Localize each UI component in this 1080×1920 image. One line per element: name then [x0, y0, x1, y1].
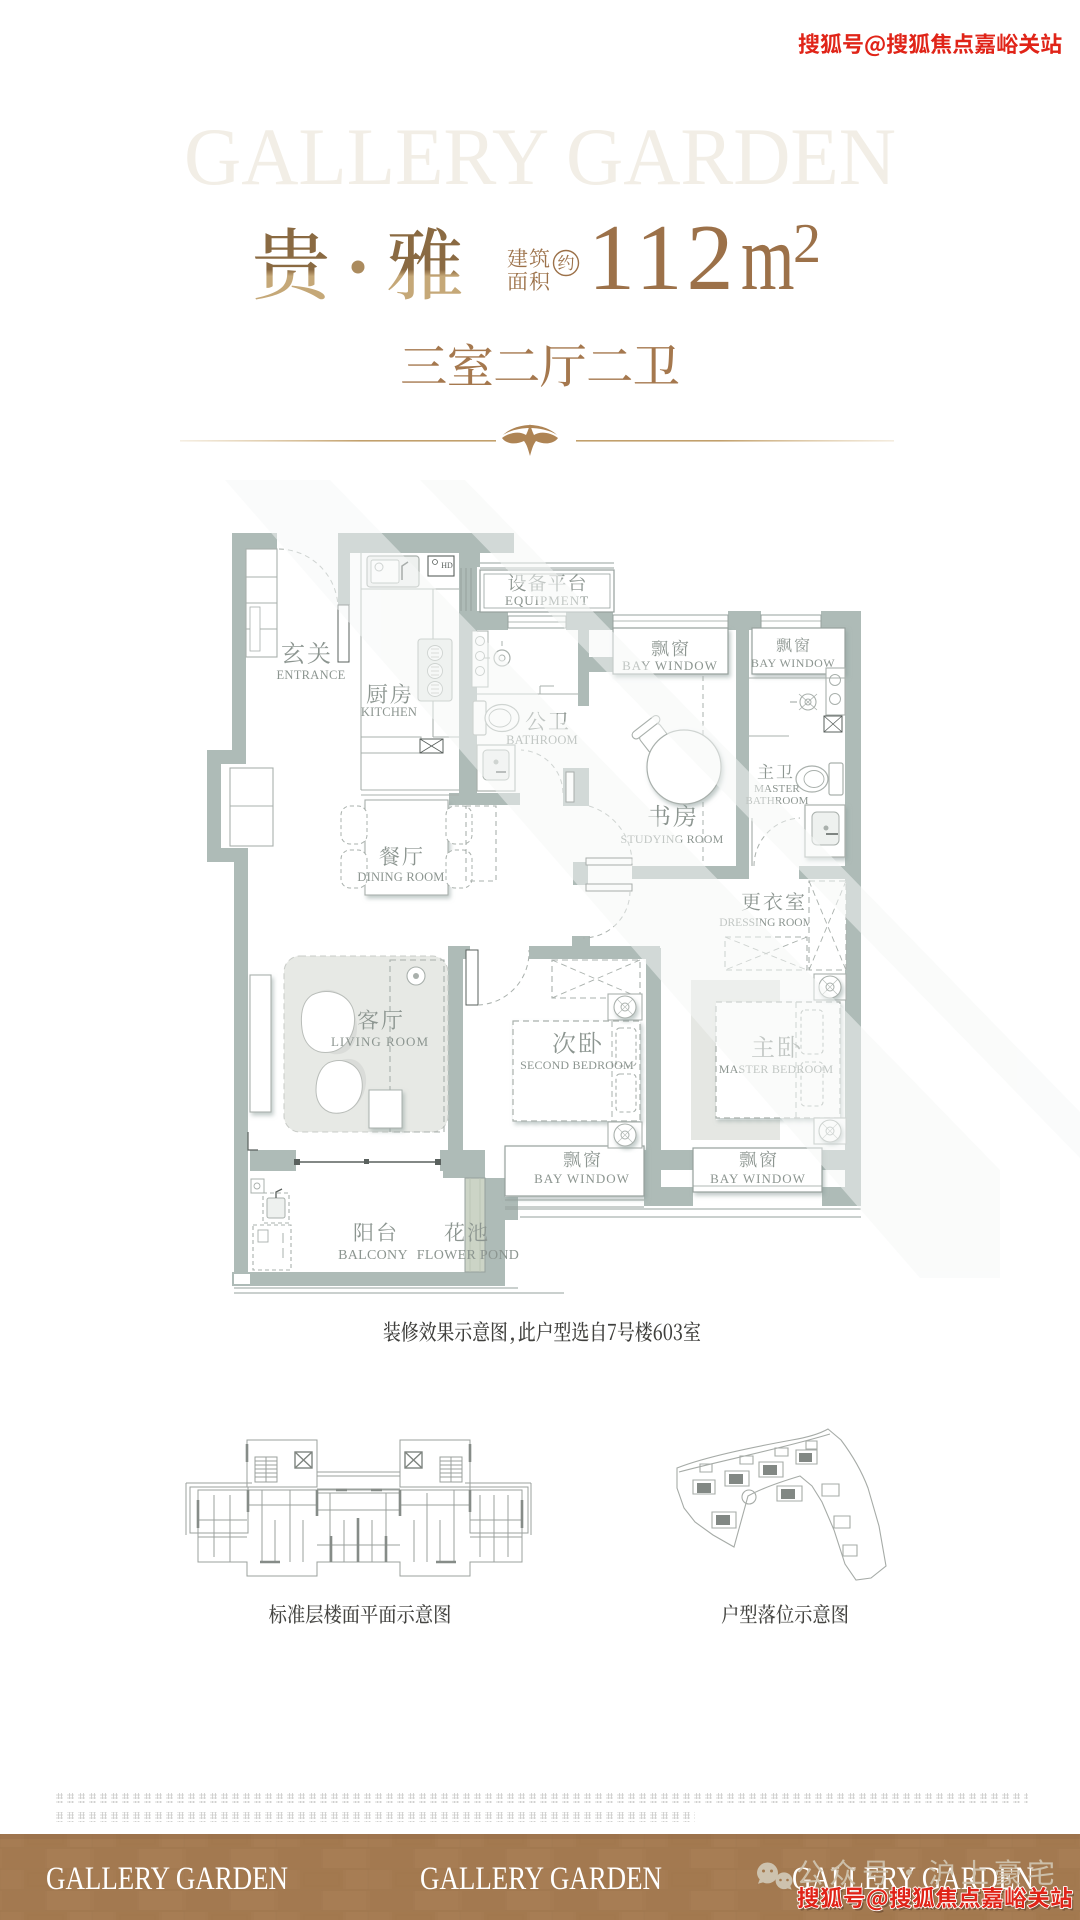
svg-text:FLOWER POND: FLOWER POND: [417, 1248, 519, 1263]
svg-text:GALLERY GARDEN: GALLERY GARDEN: [420, 1861, 662, 1897]
svg-text:BAY WINDOW: BAY WINDOW: [710, 1171, 806, 1186]
svg-text:m: m: [741, 206, 795, 309]
svg-text:2: 2: [793, 213, 821, 275]
svg-text:KITCHEN: KITCHEN: [361, 705, 417, 719]
svg-text:112: 112: [588, 206, 738, 310]
svg-text:GALLERY GARDEN: GALLERY GARDEN: [184, 111, 896, 202]
svg-text:DINING ROOM: DINING ROOM: [357, 870, 444, 884]
svg-text:GALLERY GARDEN: GALLERY GARDEN: [46, 1861, 288, 1897]
svg-text:LIVING ROOM: LIVING ROOM: [331, 1034, 429, 1049]
svg-text:BAY WINDOW: BAY WINDOW: [534, 1171, 630, 1186]
svg-text:SECOND BEDROOM: SECOND BEDROOM: [520, 1058, 634, 1072]
svg-text:HD: HD: [441, 561, 453, 570]
svg-text:BALCONY: BALCONY: [338, 1248, 408, 1263]
svg-text:ENTRANCE: ENTRANCE: [276, 668, 345, 682]
svg-text:BAY WINDOW: BAY WINDOW: [751, 656, 835, 670]
